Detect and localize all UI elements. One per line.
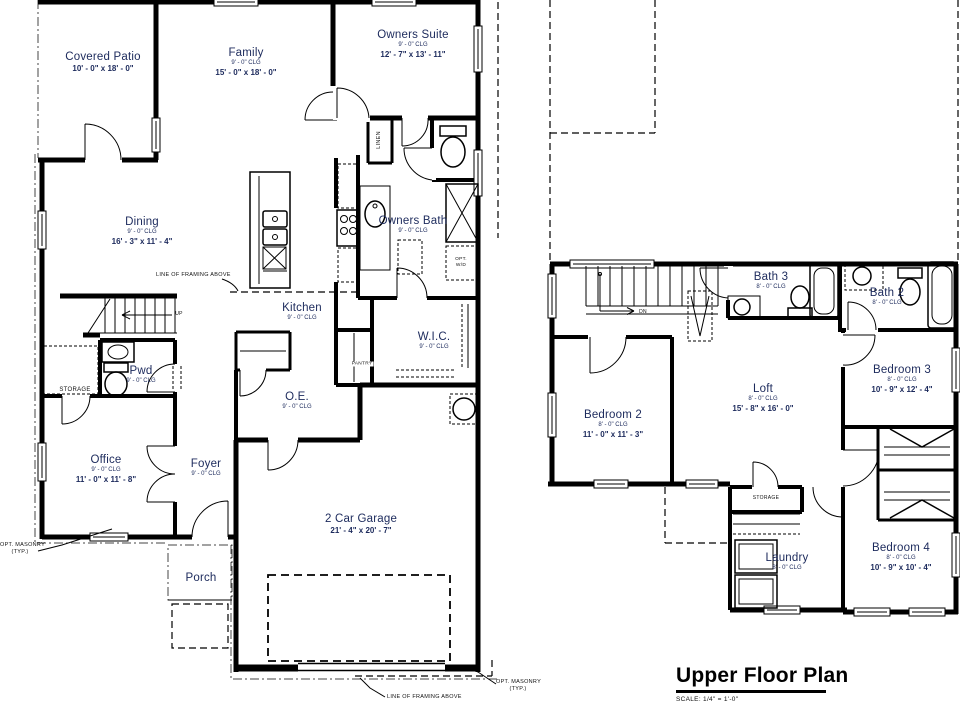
stairs-icon [85, 298, 177, 333]
upper-floor-plan [548, 0, 960, 616]
room-label-oe: O.E. 9' - 0" CLG [282, 390, 311, 412]
room-label-dining: Dining 9' - 0" CLG 16' - 3" x 11' - 4" [112, 215, 173, 247]
room-label-wic: W.I.C. 9' - 0" CLG [418, 330, 451, 352]
line-of-framing-label-kitchen: LINE OF FRAMING ABOVE [156, 272, 231, 278]
room-label-bedroom4: Bedroom 4 8' - 0" CLG 10' - 9" x 10' - 4… [870, 541, 931, 573]
upper-stairs-icon [586, 266, 718, 315]
room-label-office: Office 9' - 0" CLG 11' - 0" x 11' - 8" [76, 453, 136, 485]
first-floor-walls [38, 0, 478, 672]
closet-shelving [884, 429, 954, 518]
room-label-loft: Loft 8' - 0" CLG 15' - 8" x 16' - 0" [732, 382, 793, 414]
room-label-owners-suite: Owners Suite 9' - 0" CLG 12' - 7" x 13' … [377, 28, 448, 60]
opt-masonry-label-right: OPT. MASONRY (TYP.) [496, 679, 540, 693]
linen-label: LINEN [376, 130, 382, 150]
opt-masonry-label-left: OPT. MASONRY (TYP.) [0, 542, 40, 556]
room-label-bath3: Bath 3 8' - 0" CLG [754, 270, 788, 292]
title-block: Upper Floor Plan SCALE: 1/4" = 1'-0" [676, 664, 848, 703]
room-label-bath2: Bath 2 8' - 0" CLG [870, 286, 904, 308]
stairs-up-label: UP [175, 311, 183, 317]
optional-wd-label: OPT. W/D [455, 257, 467, 269]
kitchen-island-icon [250, 172, 290, 288]
line-of-framing-label-garage: LINE OF FRAMING ABOVE [387, 694, 462, 700]
plan-scale: SCALE: 1/4" = 1'-0" [676, 696, 848, 703]
attic-access [688, 291, 712, 341]
room-label-bedroom3: Bedroom 3 8' - 0" CLG 10' - 9" x 12' - 4… [871, 363, 932, 395]
room-label-garage: 2 Car Garage 21' - 4" x 20' - 7" [325, 512, 397, 536]
stairs-dn-label: DN [639, 309, 647, 315]
garage-door-outline [268, 575, 450, 661]
shower-icon [446, 184, 478, 242]
room-label-laundry: Laundry 8' - 0" CLG [766, 551, 809, 573]
room-label-pwd: Pwd 9' - 0" CLG [126, 364, 155, 386]
title-underline [676, 690, 826, 693]
porch-outline [168, 545, 232, 648]
floor-plan-linework [0, 0, 960, 720]
storage-label-first-floor: STORAGE [58, 387, 91, 393]
pantry-label: PANTRY [351, 362, 374, 367]
range-icon [337, 164, 359, 282]
storage-label-upper-floor: STORAGE [752, 495, 780, 501]
room-label-porch: Porch [185, 571, 216, 585]
room-label-foyer: Foyer 9' - 0" CLG [191, 457, 221, 479]
floor-plan-document: Covered Patio 10' - 0" x 18' - 0" Family… [0, 0, 960, 720]
room-label-bedroom2: Bedroom 2 8' - 0" CLG 11' - 0" x 11' - 3… [583, 408, 643, 440]
owners-wc-toilet-icon [440, 126, 466, 167]
room-label-covered-patio: Covered Patio 10' - 0" x 18' - 0" [65, 50, 140, 74]
room-label-kitchen: Kitchen 9' - 0" CLG [282, 301, 322, 323]
plan-title: Upper Floor Plan [676, 664, 848, 688]
room-label-family: Family 9' - 0" CLG 15' - 0" x 18' - 0" [215, 46, 276, 78]
room-label-owners-bath: Owners Bath 9' - 0" CLG [379, 214, 448, 236]
